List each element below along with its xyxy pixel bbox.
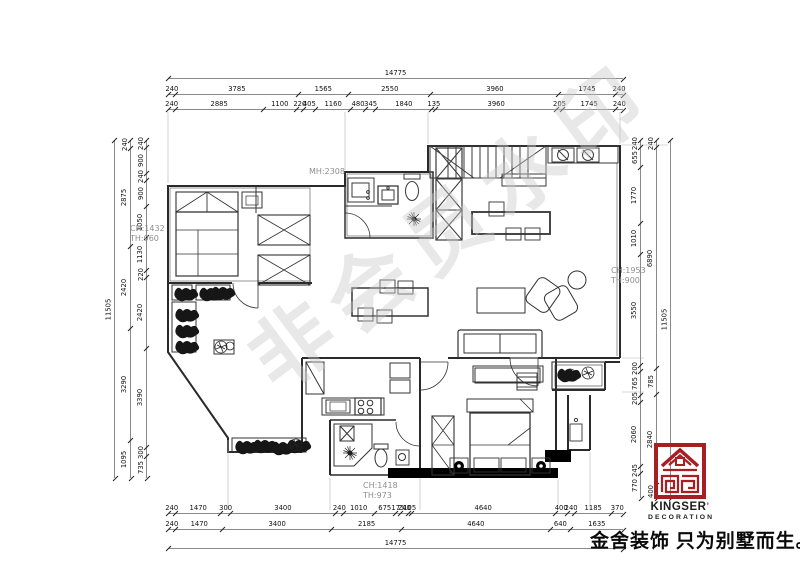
note-bottom-ch: CH:1418 (363, 481, 398, 491)
dim-segment: 240 (616, 99, 623, 110)
dim-segment: 4640 (402, 519, 551, 530)
dim-segment: 4640 (411, 503, 555, 514)
logo-name-text: KINGSER (651, 501, 707, 513)
dim-segment: 2060 (630, 402, 641, 466)
logo-apostrophe: ’ (706, 501, 709, 511)
dim-top-row3: 2402885110022040511604803451840135396020… (168, 99, 623, 110)
dim-segment: 3290 (120, 329, 131, 441)
dim-segment: 735 (136, 456, 147, 478)
window-height-note-right: CH:1953 TH:900 (611, 266, 646, 285)
note-right-ch: CH:1953 (611, 266, 646, 276)
dim-segment: 1745 (559, 84, 615, 95)
dim-segment: 2550 (349, 84, 431, 95)
dim-segment: 14775 (168, 68, 623, 79)
note-right-th: TH:900 (611, 276, 646, 286)
dim-segment: 405 (303, 99, 315, 110)
dim-segment: 1840 (376, 99, 432, 110)
dim-segment: 240 (615, 84, 623, 95)
dim-segment: 240 (120, 140, 131, 148)
dim-segment: 2420 (136, 277, 147, 348)
dim-segment: 3400 (223, 519, 332, 530)
dim-segment: 3960 (436, 99, 556, 110)
dim-segment: 11505 (104, 140, 115, 478)
dim-segment: 3390 (136, 348, 147, 447)
dim-segment: 770 (630, 474, 641, 498)
dim-segment: 900 (136, 180, 147, 206)
window-height-note-bottom: CH:1418 TH:973 (363, 481, 398, 500)
dim-segment: 1160 (316, 99, 351, 110)
ceiling-height-note: MH:2308 (309, 167, 345, 177)
dim-segment: 655 (630, 147, 641, 167)
dim-segment: 640 (550, 519, 571, 530)
dim-segment: 3960 (431, 84, 559, 95)
dim-right-inner: 2406551770101035502007652052060245770 (630, 140, 641, 498)
dim-segment: 1470 (176, 519, 223, 530)
dim-segment: 1185 (575, 503, 612, 514)
dim-top-total: 14775 (168, 68, 623, 79)
window-height-note-left: CH:1432 TH:960 (130, 224, 165, 243)
dim-left-outer: 11505 (104, 140, 115, 478)
dim-segment: 1745 (563, 99, 616, 110)
dim-segment: 240 (336, 503, 343, 514)
dim-bottom-total: 14775 (168, 538, 623, 549)
dim-segment: 1100 (263, 99, 296, 110)
dim-left-inner: 2409002409001050113022024203390300735 (136, 140, 147, 478)
dim-segment: 300 (221, 503, 230, 514)
dim-segment: 1470 (175, 503, 221, 514)
dim-segment: 2420 (120, 246, 131, 328)
dim-segment: 6890 (646, 148, 657, 369)
kingser-logo-icon (654, 443, 706, 499)
dim-segment: 3400 (230, 503, 335, 514)
floorplan-canvas: 14775 24037851565255039601745240 2402885… (0, 0, 800, 566)
dim-segment: 14775 (168, 538, 623, 549)
dim-segment: 1010 (630, 223, 641, 255)
note-left-th: TH:960 (130, 234, 165, 244)
dim-bottom-row2: 24014703400218546406401635 (168, 519, 623, 530)
kingser-logo: KINGSER’ DECORATION (648, 443, 712, 521)
dim-bottom-row1: 2401470300340024010106751752401054640400… (168, 503, 623, 514)
dim-segment: 3785 (176, 84, 298, 95)
logo-wordmark: KINGSER’ (648, 501, 712, 513)
note-bottom-th: TH:973 (363, 491, 398, 501)
dim-segment: 785 (646, 369, 657, 394)
dim-segment: 2885 (175, 99, 263, 110)
dim-top-row2: 24037851565255039601745240 (168, 84, 623, 95)
logo-subtitle: DECORATION (648, 514, 712, 521)
slogan-text: 金舍装饰 只为别墅而生。 (590, 526, 800, 553)
dim-segment: 370 (612, 503, 623, 514)
note-left-ch: CH:1432 (130, 224, 165, 234)
dim-segment: 1010 (343, 503, 374, 514)
dim-segment: 1770 (630, 168, 641, 223)
dim-segment: 1095 (120, 441, 131, 478)
dim-left-mid: 2402875242032901095 (120, 140, 131, 478)
dim-segment: 1565 (298, 84, 349, 95)
dim-segment: 2185 (332, 519, 402, 530)
